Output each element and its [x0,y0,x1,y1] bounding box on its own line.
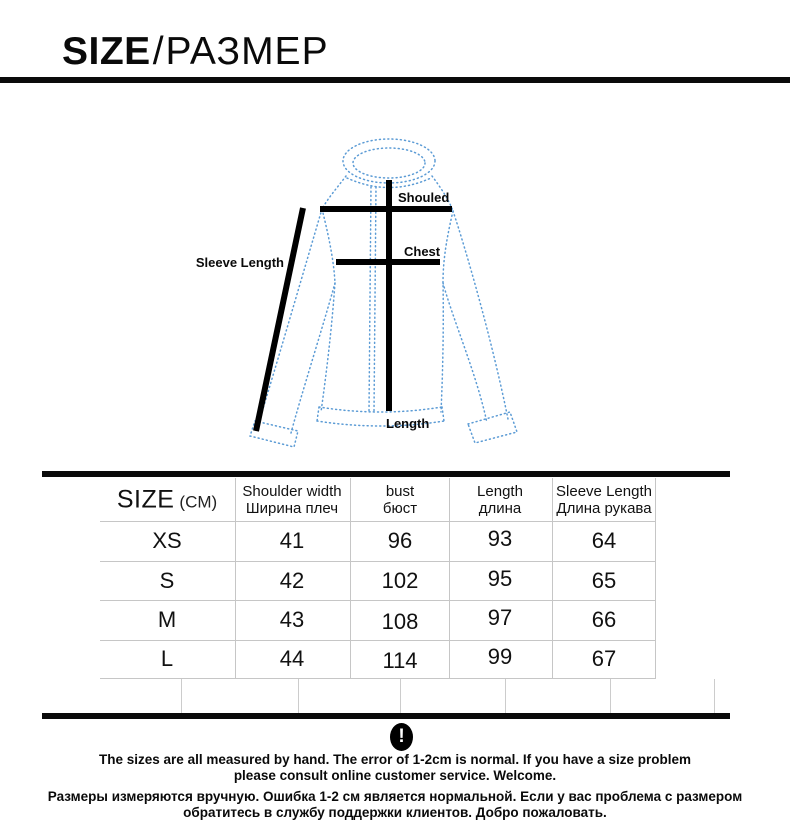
left-shoulder-outline [322,176,346,209]
size-cell: M [158,607,176,633]
value-cell: 65 [592,568,616,594]
value-cell: 97 [488,605,512,631]
size-cell: L [161,646,173,672]
notice-en-line1: The sizes are all measured by hand. The … [0,752,790,767]
notice-ru-line1: Размеры измеряются вручную. Ошибка 1-2 с… [0,789,790,804]
column-header-en: Sleeve Length [556,483,652,500]
size-cell: XS [152,528,181,554]
title-size-ru: РАЗМЕР [166,30,329,73]
hood-inner-outline [353,148,425,178]
sleeve-length-label: Sleeve Length [196,255,284,270]
corner-size-label: SIZE [117,486,175,514]
grid-tick [714,679,715,713]
column-header-ru: бюст [383,500,417,517]
value-cell: 114 [382,648,417,674]
table-column-line [655,478,656,678]
notice-en-line2: please consult online customer service. … [0,768,790,783]
title-size-en: SIZE [62,30,151,73]
right-sleeve-outer-outline [453,211,508,419]
hood-outer-outline [343,139,435,183]
table-top-rule [42,471,730,477]
column-header-en: Shoulder width [242,483,341,500]
table-column-line [552,478,553,678]
value-cell: 108 [382,609,419,635]
zipper-line-right [374,187,376,412]
table-bottom-rule [42,713,730,719]
value-cell: 64 [592,528,616,554]
length-label: Length [386,416,429,431]
right-cuff-outline [468,412,517,443]
page-title: SIZE/РАЗМЕР [62,30,329,74]
value-cell: 42 [280,568,304,594]
sleeve-measure-line [256,208,303,431]
column-header-sleeve-length: Sleeve Length Длина рукава [556,483,652,517]
value-cell: 44 [280,646,304,672]
body-left-outline [321,209,335,412]
grid-tick [610,679,611,713]
table-column-line [235,478,236,678]
column-header-ru: Длина рукава [556,500,652,517]
table-column-line [449,478,450,678]
grid-tick [400,679,401,713]
value-cell: 67 [592,646,616,672]
left-sleeve-inner-outline [291,283,335,433]
value-cell: 95 [488,566,512,592]
column-header-shoulder-width: Shoulder width Ширина плеч [242,483,341,517]
table-row-line [100,678,656,679]
column-header-ru: Ширина плеч [242,500,341,517]
table-row-line [100,521,656,522]
column-header-ru: длина [477,500,523,517]
value-cell: 66 [592,607,616,633]
column-header-bust: bust бюст [383,483,417,517]
table-row-line [100,640,656,641]
size-chart-page: SIZE/РАЗМЕР Shouled [0,0,790,836]
table-row-line [100,561,656,562]
value-cell: 99 [488,644,512,670]
grid-tick [505,679,506,713]
grid-tick [298,679,299,713]
column-header-en: Length [477,483,523,500]
column-header-length: Length длина [477,483,523,517]
table-column-line [350,478,351,678]
value-cell: 96 [388,528,412,554]
title-slash: / [153,30,164,73]
notice-ru-line2: обратитесь в службу поддержки клиентов. … [0,805,790,820]
zipper-line-left [369,187,371,412]
value-cell: 41 [280,528,304,554]
corner-unit-label: (CM) [179,493,217,512]
jacket-measurement-diagram: Shouled Chest Sleeve Length Length [180,115,610,460]
exclamation-icon: ! [390,723,413,751]
title-divider-rule [0,77,790,83]
grid-tick [181,679,182,713]
chest-label: Chest [404,244,441,259]
value-cell: 43 [280,607,304,633]
table-row-line [100,600,656,601]
table-corner-header: SIZE(CM) [117,486,217,515]
shoulder-label: Shouled [398,190,449,205]
exclamation-glyph: ! [398,726,404,748]
column-header-en: bust [383,483,417,500]
size-cell: S [160,568,175,594]
value-cell: 102 [382,568,419,594]
left-sleeve-outer-outline [258,209,322,425]
value-cell: 93 [488,526,512,552]
